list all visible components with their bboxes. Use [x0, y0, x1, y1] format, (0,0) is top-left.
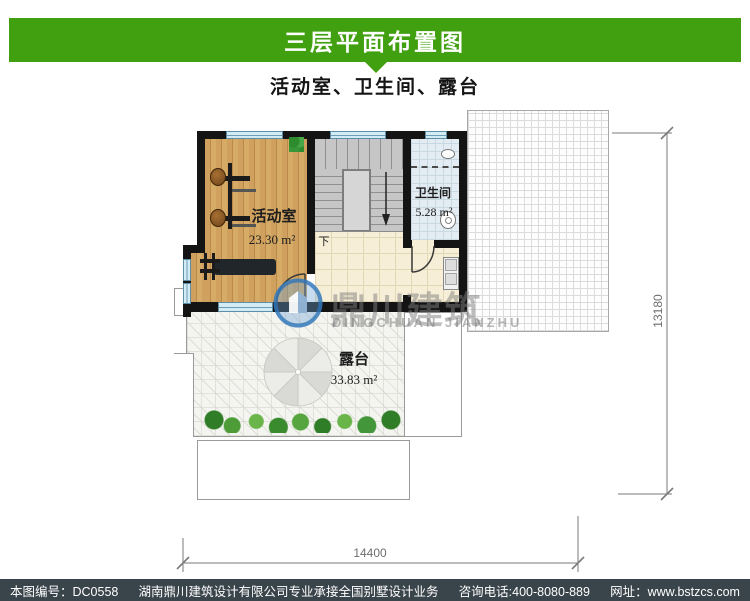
terrace-label: 露台 — [326, 348, 382, 369]
bathroom-label: 卫生间 — [410, 184, 456, 201]
bench-rack-bar1 — [200, 259, 220, 263]
workout-bench — [214, 259, 276, 275]
window-bathroom — [425, 131, 447, 139]
dimension-right: 13180 — [651, 281, 665, 341]
page-subtitle: 活动室、卫生间、露台 — [0, 72, 750, 99]
window-left-1 — [183, 259, 191, 281]
activity-room-label: 活动室 — [238, 205, 310, 226]
dimension-bottom: 14400 — [340, 546, 400, 560]
stair-edge-line — [315, 231, 403, 232]
stair-down-label: 下 — [316, 233, 332, 249]
footer-phone: 咨询电话:400-8080-889 — [459, 581, 590, 600]
terrace-step — [174, 353, 194, 437]
weight-plate-2 — [210, 209, 226, 227]
title-banner: 三层平面布置图 — [9, 18, 741, 62]
terrace-plants — [202, 404, 403, 433]
bathroom-area: 5.28 m² — [408, 205, 460, 220]
window-top-2 — [330, 131, 386, 139]
weight-plate-1 — [210, 168, 226, 186]
roof-outline-below — [197, 440, 410, 500]
watermark-text-en: DINGCHUAN JIANZHU — [332, 315, 632, 330]
wall-left-upper — [197, 131, 205, 253]
stair-landing — [315, 139, 403, 169]
wall-bathroom-bottom-right — [434, 240, 459, 248]
bench-rack-1 — [204, 253, 207, 280]
stair-void — [342, 169, 371, 232]
basin-1 — [445, 259, 457, 271]
window-top-1 — [226, 131, 283, 139]
activity-room-area: 23.30 m² — [232, 232, 312, 248]
wall-bathroom-bottom-left — [403, 240, 412, 248]
shower-partition-line — [411, 166, 459, 168]
footer-website: 网址：www.bstzcs.com — [610, 581, 740, 600]
rack-bar-1 — [232, 189, 256, 192]
stair-flight-right — [371, 169, 403, 232]
floor-plan-poster: 三层平面布置图 活动室、卫生间、露台 — [0, 0, 750, 601]
footer-company: 湖南鼎川建筑设计有限公司专业承接全国别墅设计业务 — [139, 581, 439, 600]
window-bottom — [218, 302, 273, 312]
sink-icon — [441, 149, 455, 159]
window-left-2 — [183, 283, 191, 304]
stair-flight-left — [315, 169, 342, 232]
terrace-area: 33.83 m² — [318, 372, 390, 388]
bench-rack-bar2 — [200, 269, 220, 273]
footer-drawing-number: 本图编号：DC0558 — [10, 581, 118, 600]
page-title: 三层平面布置图 — [284, 23, 466, 57]
footer-bar: 本图编号：DC0558 湖南鼎川建筑设计有限公司专业承接全国别墅设计业务 咨询电… — [0, 579, 750, 601]
plant-icon — [289, 137, 304, 152]
bench-rack-2 — [212, 253, 215, 280]
